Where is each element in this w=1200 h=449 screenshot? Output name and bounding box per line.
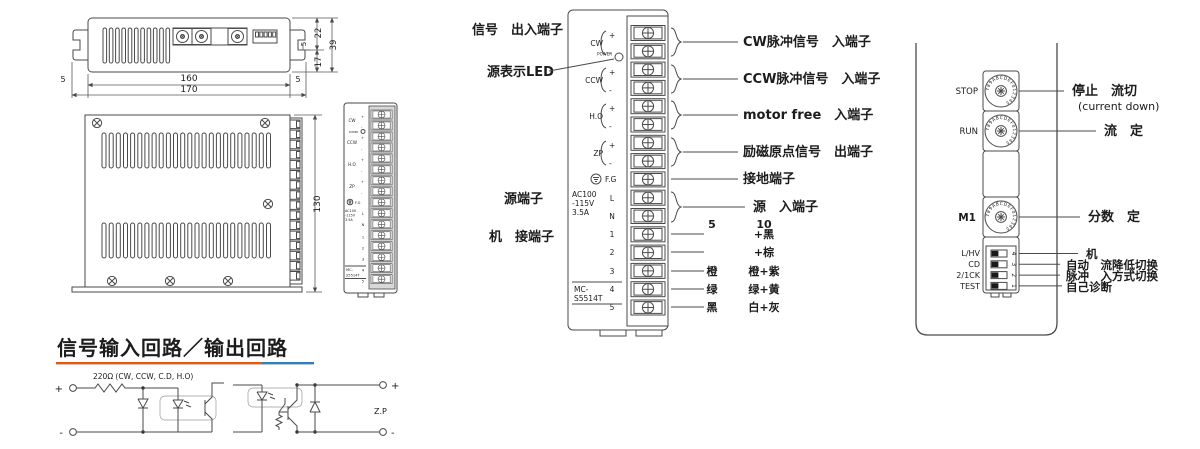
label-motor-terminal: 机 接端子	[489, 229, 554, 245]
mini-l: L	[362, 212, 364, 216]
panel-ac3: 3.5A	[572, 208, 590, 217]
switch-panel-diagram: STOP RUN M1 停止 流切 (current down) 流 定 分数 …	[916, 43, 1159, 335]
panel-ac1: AC100	[572, 190, 597, 199]
panel-fg: F.G	[605, 175, 616, 184]
wire-r4-c10: 绿+黄	[748, 282, 779, 296]
mini-t1: 1	[362, 236, 364, 240]
mini-ho: H.O	[348, 162, 356, 167]
optocoupler-box-input	[160, 396, 216, 420]
front-view-drawing: 130	[72, 115, 323, 292]
panel-zp: ZP	[593, 149, 603, 158]
base-resistor	[276, 412, 282, 430]
panel-t2: 2	[610, 248, 615, 257]
out-minus: -	[391, 428, 395, 439]
rotary-top-m1	[228, 29, 247, 45]
mini-ac2: -115V	[345, 214, 356, 218]
dim-130: 130	[313, 195, 323, 212]
label-stop: STOP	[956, 87, 978, 97]
output-terminal-plus	[380, 382, 387, 389]
small-panel-view: CW + - POWER CCW + - H.O + - ZP + - F.G …	[344, 103, 397, 297]
dip-num-2: 2	[1010, 273, 1017, 277]
dim-170: 170	[180, 85, 197, 95]
input-terminal-minus	[70, 429, 77, 436]
wire-color-table: 5 10 +黑 +棕 橙 橙+紫 绿 绿+黄 黑 白+灰	[671, 218, 780, 314]
label-run: RUN	[960, 127, 979, 137]
diagram-canvas: 789ABCDEF012345	[0, 0, 1200, 449]
dip-label-2-1ck: 2/1CK	[956, 271, 980, 280]
dip-desc-4: 自己诊断	[1066, 280, 1112, 294]
label-ccw-input: CCW脉冲信号 入端子	[743, 71, 880, 87]
mini-model2: S5514T	[346, 274, 360, 278]
dim-5-right: 5	[295, 75, 300, 84]
panel-t1: 1	[610, 230, 615, 239]
panel-t3: 3	[610, 267, 615, 276]
wire-r2-c10: +棕	[754, 245, 774, 259]
mini-t2: 2	[362, 247, 364, 251]
opto-led-input	[173, 388, 183, 432]
label-motor-free: motor free 入端子	[743, 107, 873, 123]
title-underline-orange	[56, 362, 262, 364]
desc-run: 流 定	[1104, 123, 1143, 139]
rotary-stop	[985, 75, 1017, 107]
dip-num-3: 3	[1010, 262, 1017, 266]
power-led	[615, 53, 623, 61]
in-plus: +	[55, 384, 63, 395]
dip-num-1: 1	[1010, 284, 1017, 288]
mini-ccw: CCW	[347, 140, 357, 145]
dip-switch-block: 4 3 2 1	[986, 246, 1017, 290]
panel-n: N	[609, 212, 615, 221]
mini-t3: 3	[362, 258, 364, 262]
label-cw-input: CW脉冲信号 入端子	[743, 34, 871, 50]
dip-label-lhv: L/HV	[961, 249, 980, 258]
mini-power: POWER	[349, 131, 358, 134]
dimension-height: 22 39 17 5	[292, 18, 339, 72]
circuit-title: 信号输入回路／输出回路	[57, 336, 288, 360]
terminal-strip-side	[290, 118, 302, 284]
mounting-ear-left	[73, 30, 88, 60]
panel-t4: 4	[610, 285, 615, 294]
rotary-run	[985, 115, 1017, 147]
output-terminal-minus	[380, 429, 387, 436]
mini-model1: MC-	[346, 268, 354, 272]
power-led-label: POWER	[597, 52, 612, 57]
desc-stop2: (current down)	[1078, 100, 1159, 113]
dim-160: 160	[180, 74, 197, 84]
panel-ho-plus: +	[609, 104, 615, 113]
circuit-section: 信号输入回路／输出回路 + - 220Ω (CW, CCW, C.D, H.O)	[55, 336, 400, 439]
vent-slots-top	[103, 28, 170, 63]
panel-model2: S5514T	[574, 294, 603, 303]
wire-col5-header: 5	[708, 218, 716, 231]
wire-r3-c10: 橙+紫	[748, 264, 779, 278]
label-signal-io: 信号 出入端子	[472, 22, 563, 38]
label-m1: M1	[958, 212, 976, 224]
mini-ac1: AC100	[345, 209, 356, 213]
wire-r1-c10: +黑	[754, 228, 774, 241]
panel-ccw-minus: -	[609, 86, 612, 95]
mini-n: N	[362, 223, 365, 227]
mini-cw: CW	[348, 118, 355, 123]
dip-num-4: 4	[1010, 252, 1017, 256]
mini-ho-plus: +	[361, 158, 364, 162]
label-power-terminal: 源端子	[504, 191, 543, 207]
dim-22: 22	[314, 28, 324, 39]
mini-power-led	[361, 130, 365, 134]
output-circuit: + - Z.P	[233, 381, 399, 439]
panel-ccw-plus: +	[609, 68, 615, 77]
out-plus: +	[391, 381, 399, 392]
desc-stop: 停止 流切	[1072, 83, 1137, 99]
mini-fg: F.G	[355, 201, 361, 205]
panel-cw-plus: +	[609, 31, 615, 40]
desc-m1: 分数 定	[1088, 209, 1140, 225]
resistor-label: 220Ω (CW, CCW, C.D, H.O)	[93, 372, 193, 381]
panel-zp-minus: -	[609, 159, 612, 168]
dim-39: 39	[329, 40, 339, 51]
mini-ccw-plus: +	[361, 136, 364, 140]
datasheet-page: 789ABCDEF012345	[0, 0, 1200, 449]
mini-zp-plus: +	[361, 180, 364, 184]
mini-cw-plus: +	[361, 115, 364, 119]
output-diode	[310, 385, 320, 432]
right-callouts: CW脉冲信号 入端子 CCW脉冲信号 入端子 motor free 入端子 励磁…	[671, 28, 880, 222]
panel-ac2: -115V	[572, 199, 595, 208]
label-power-input: 源 入端子	[753, 199, 818, 215]
wire-r5-c5: 黑	[707, 301, 718, 314]
opto-transistor-output	[279, 398, 285, 412]
input-clamp-diode	[138, 388, 148, 432]
mini-t5: 5	[362, 280, 364, 284]
wire-r3-c5: 橙	[707, 264, 719, 278]
terminal-panel-diagram: CW + - POWER CCW + - H.O + - ZP + - F.G …	[472, 10, 880, 336]
panel-model1: MC-	[574, 285, 589, 294]
optocoupler-box-output	[248, 388, 302, 407]
input-terminal-plus	[70, 385, 77, 392]
rotary-top-run	[192, 29, 211, 45]
dim-17: 17	[314, 57, 324, 68]
in-minus: -	[59, 428, 63, 439]
mini-zp: ZP	[349, 184, 355, 189]
rotary-m1	[985, 201, 1017, 233]
rotary-top-stop	[173, 29, 192, 45]
wire-r4-c5: 绿	[707, 282, 719, 296]
panel-zp-plus: +	[609, 141, 615, 150]
wire-r5-c10: 白+灰	[748, 300, 779, 314]
dim-5-side: 5	[300, 42, 308, 46]
zp-label: Z.P	[374, 407, 387, 416]
title-underline-blue	[262, 362, 314, 364]
opto-transistor-input	[205, 383, 224, 432]
label-ground: 接地端子	[743, 171, 795, 187]
dip-label-cd: CD	[968, 260, 980, 269]
dip-switch-top	[253, 30, 277, 43]
top-view-drawing: 160 170 5 5 22 39 17 5	[60, 18, 339, 98]
mini-ac3: 3.5A	[345, 218, 353, 222]
base-flange	[72, 287, 302, 292]
dim-5-left: 5	[60, 75, 65, 84]
input-circuit: + - 220Ω (CW, CCW, C.D, H.O)	[55, 372, 224, 439]
opto-led-output	[257, 385, 267, 432]
label-power-led: 源表示LED	[487, 64, 554, 80]
label-zp-output: 励磁原点信号 出端子	[743, 144, 873, 160]
dip-label-test: TEST	[959, 282, 980, 291]
panel-ho-minus: -	[609, 122, 612, 131]
